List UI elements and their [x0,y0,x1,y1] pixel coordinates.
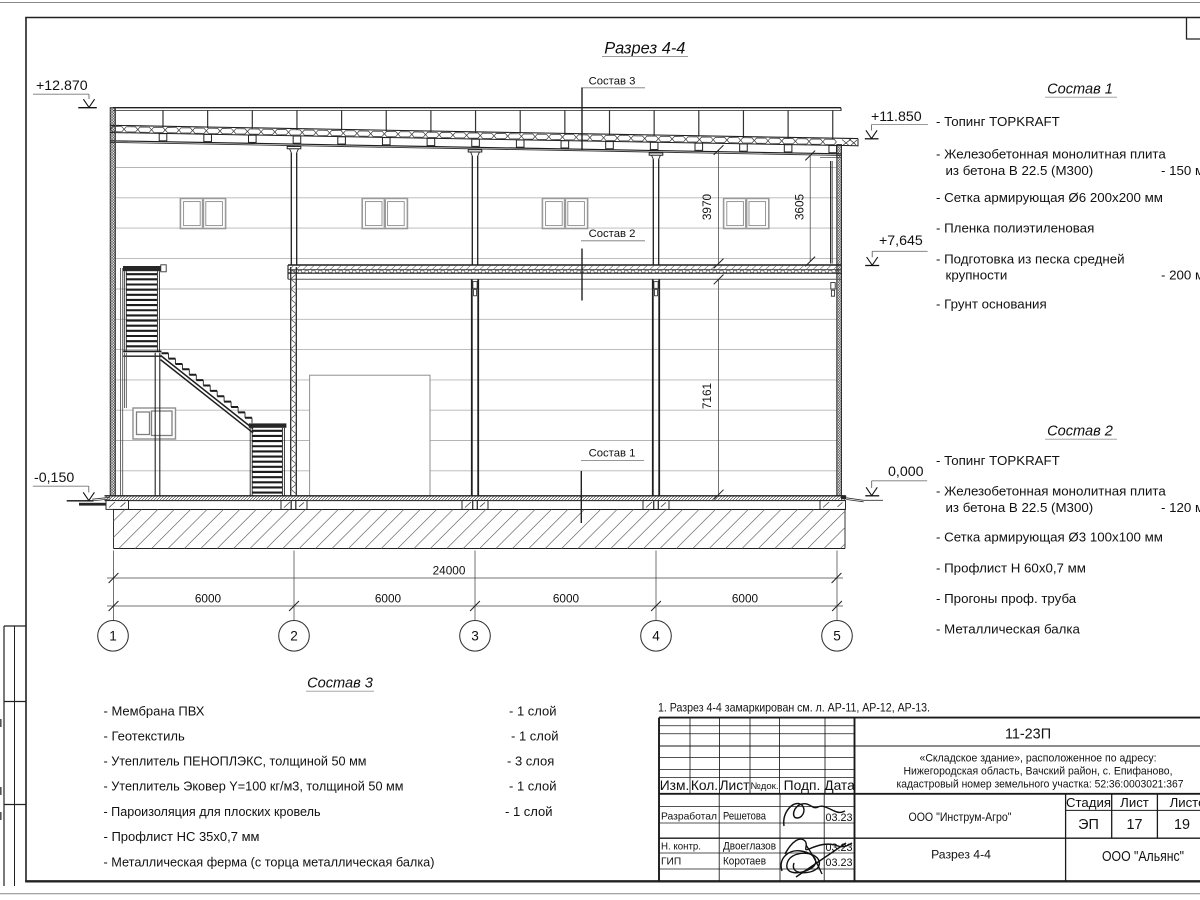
svg-text:6000: 6000 [553,592,580,606]
svg-text:Двоеглазов: Двоеглазов [723,841,776,853]
svg-text:Состав 2: Состав 2 [1047,424,1113,440]
svg-text:ЭП: ЭП [1078,817,1099,833]
svg-text:- Металлическая ферма (с торца: - Металлическая ферма (с торца металличе… [104,855,435,870]
svg-text:6000: 6000 [195,592,222,606]
svg-text:17: 17 [1126,817,1142,833]
svg-text:Разработал: Разработал [661,811,717,823]
svg-text:из бетона В 22.5 (М300): из бетона В 22.5 (М300) [946,500,1094,515]
svg-text:Дата: Дата [824,778,855,793]
svg-text:ООО "Альянс": ООО "Альянс" [1102,849,1184,865]
svg-text:1: 1 [109,629,117,644]
svg-text:6000: 6000 [375,592,402,606]
svg-text:- Сетка армирующая Ø6 200х200: - Сетка армирующая Ø6 200х200 мм [936,190,1163,205]
svg-text:Лист: Лист [720,778,751,793]
svg-text:2: 2 [290,629,298,644]
svg-text:Состав 3: Состав 3 [307,676,373,692]
svg-text:№док.: №док. [750,781,778,792]
svg-text:Разрез 4-4: Разрез 4-4 [604,40,685,58]
svg-text:Н. контр.: Н. контр. [661,842,701,853]
svg-text:7161: 7161 [700,383,714,409]
svg-text:кадастровый номер земельного у: кадастровый номер земельного участка: 52… [897,779,1184,791]
svg-text:1. Разрез 4-4 замаркирован см.: 1. Разрез 4-4 замаркирован см. л. АР-11,… [658,701,930,715]
svg-text:4: 4 [652,629,660,644]
svg-text:- Профлист Н 60х0,7 мм: - Профлист Н 60х0,7 мм [936,561,1086,576]
svg-text:11-23П: 11-23П [1005,727,1051,743]
svg-text:- 1 слой: - 1 слой [509,779,557,794]
svg-text:Разрез 4-4: Разрез 4-4 [931,848,991,862]
svg-text:- Подготовка из песка средней: - Подготовка из песка средней [936,252,1125,267]
svg-text:- Пароизоляция для плоских кро: - Пароизоляция для плоских кровель [104,804,321,819]
svg-text:Решетова: Решетова [723,811,767,823]
svg-text:5: 5 [833,629,841,644]
svg-text:Кол.: Кол. [691,778,718,793]
svg-text:03.23: 03.23 [825,812,852,824]
svg-text:- Профлист НС 35х0,7 мм: - Профлист НС 35х0,7 мм [104,829,260,844]
svg-text:Коротаев: Коротаев [723,856,766,868]
svg-text:Изм.: Изм. [660,778,690,793]
svg-text:Состав 2: Состав 2 [589,228,636,240]
svg-text:+7,645: +7,645 [879,233,923,249]
svg-text:-0,150: -0,150 [34,470,74,486]
svg-text:Листов: Листов [1170,795,1200,810]
svg-text:- Железобетонная монолитная п: - Железобетонная монолитная плита [936,147,1166,162]
svg-text:- Железобетонная монолитная п: - Железобетонная монолитная плита [936,484,1166,499]
svg-text:из бетона В 22.5 (М300): из бетона В 22.5 (М300) [946,163,1094,178]
svg-text:Подп.: Подп. [784,778,821,793]
svg-text:- 1 слой: - 1 слой [509,704,557,719]
svg-text:- 150 мм: - 150 мм [1161,163,1200,178]
svg-text:Состав 1: Состав 1 [589,448,636,460]
svg-text:Лист: Лист [1120,795,1149,810]
svg-text:ГИП: ГИП [661,857,681,868]
svg-text:- Прогоны проф. труба: - Прогоны проф. труба [936,591,1077,606]
svg-text:- Грунт основания: - Грунт основания [936,297,1047,312]
svg-text:- 1 слой: - 1 слой [505,804,553,819]
svg-text:- 1 слой: - 1 слой [511,729,559,744]
svg-text:3970: 3970 [700,193,714,220]
svg-text:6000: 6000 [732,592,759,606]
svg-text:- 200 мм: - 200 мм [1161,268,1200,283]
svg-text:ООО "Инструм-Агро": ООО "Инструм-Агро" [909,810,1012,824]
svg-text:Нижегородская область, Вачский: Нижегородская область, Вачский район, с.… [904,766,1173,778]
svg-text:- Утеплитель Эковер Y=100 кг/м: - Утеплитель Эковер Y=100 кг/м3, толщино… [104,779,404,794]
svg-text:- Геотекстиль: - Геотекстиль [104,729,185,744]
svg-text:- Утеплитель ПЕНОПЛЭКС, толщин: - Утеплитель ПЕНОПЛЭКС, толщиной 50 мм [104,754,367,769]
svg-text:- Пленка полиэтиленовая: - Пленка полиэтиленовая [936,221,1094,236]
svg-text:Состав 1: Состав 1 [1047,82,1113,98]
svg-text:+11.850: +11.850 [871,109,922,125]
svg-text:24000: 24000 [433,564,466,578]
svg-text:- 120 мм: - 120 мм [1161,500,1200,515]
svg-text:Стадия: Стадия [1066,795,1111,810]
svg-text:03.23: 03.23 [825,857,852,869]
svg-text:+12.870: +12.870 [36,78,88,94]
svg-text:19: 19 [1174,817,1190,833]
svg-text:0,000: 0,000 [888,464,924,480]
svg-text:- Топинг TOPKRAFT: - Топинг TOPKRAFT [936,114,1060,129]
svg-text:- 3 слоя: - 3 слоя [507,754,554,769]
svg-text:«Складское здание», расположен: «Складское здание», расположенное по адр… [920,753,1157,765]
svg-text:крупности: крупности [946,268,1008,283]
svg-text:- Топинг TOPKRAFT: - Топинг TOPKRAFT [936,453,1060,468]
svg-text:- Мембрана ПВХ: - Мембрана ПВХ [104,704,205,719]
svg-text:3605: 3605 [793,193,807,220]
svg-text:- Сетка армирующая Ø3 100х100: - Сетка армирующая Ø3 100х100 мм [936,530,1163,545]
svg-text:- Металлическая балка: - Металлическая балка [936,622,1081,637]
svg-text:3: 3 [471,629,479,644]
svg-text:Состав 3: Состав 3 [589,76,636,88]
